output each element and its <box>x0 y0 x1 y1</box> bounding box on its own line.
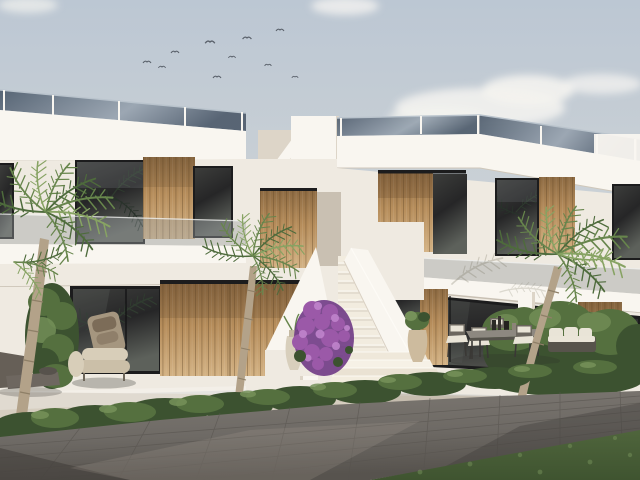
property-render-image <box>0 0 640 480</box>
cloud <box>482 75 574 105</box>
cloud <box>562 74 640 94</box>
upper-window-right-2 <box>612 184 640 260</box>
outdoor-sofa <box>548 327 596 352</box>
upper-glass-center <box>433 174 467 254</box>
